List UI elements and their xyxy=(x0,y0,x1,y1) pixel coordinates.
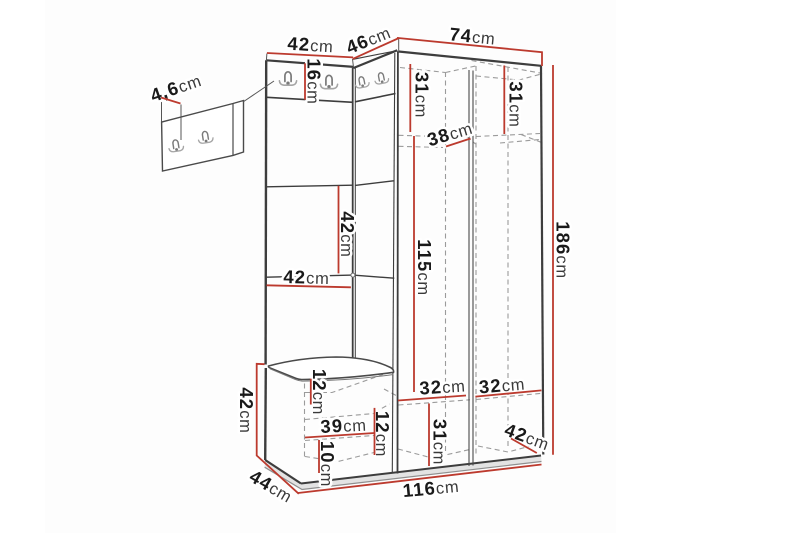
svg-text:42cm: 42cm xyxy=(337,211,358,257)
svg-text:42cm: 42cm xyxy=(283,266,330,288)
svg-text:32cm: 32cm xyxy=(419,374,467,398)
svg-text:31cm: 31cm xyxy=(412,72,433,118)
svg-text:31cm: 31cm xyxy=(430,419,451,465)
svg-text:115cm: 115cm xyxy=(414,239,435,296)
svg-text:10cm: 10cm xyxy=(317,441,338,487)
svg-text:31cm: 31cm xyxy=(506,81,527,127)
svg-text:42cm: 42cm xyxy=(236,387,257,433)
svg-text:16cm: 16cm xyxy=(304,58,325,104)
svg-text:186cm: 186cm xyxy=(553,221,574,279)
svg-text:12cm: 12cm xyxy=(309,369,330,415)
